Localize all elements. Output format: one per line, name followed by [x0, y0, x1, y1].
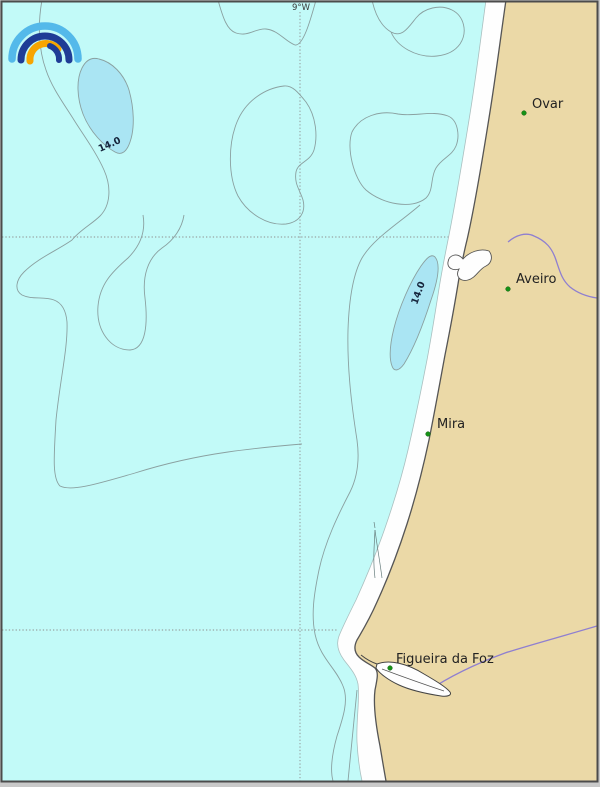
city-label-figueira: Figueira da Foz [396, 652, 494, 667]
meridian-label: 9°W [292, 3, 311, 13]
city-label-ovar: Ovar [532, 97, 564, 112]
city-label-aveiro: Aveiro [516, 272, 556, 287]
city-label-mira: Mira [437, 417, 465, 432]
map-window: 14.0 14.0 Ova [0, 0, 600, 787]
city-marker-mira [426, 432, 431, 437]
city-marker-figueira [388, 666, 393, 671]
map-area: 14.0 14.0 Ova [2, 0, 598, 781]
city-marker-aveiro [506, 287, 511, 292]
chart-canvas: 14.0 14.0 Ova [0, 0, 600, 787]
city-marker-ovar [522, 111, 527, 116]
